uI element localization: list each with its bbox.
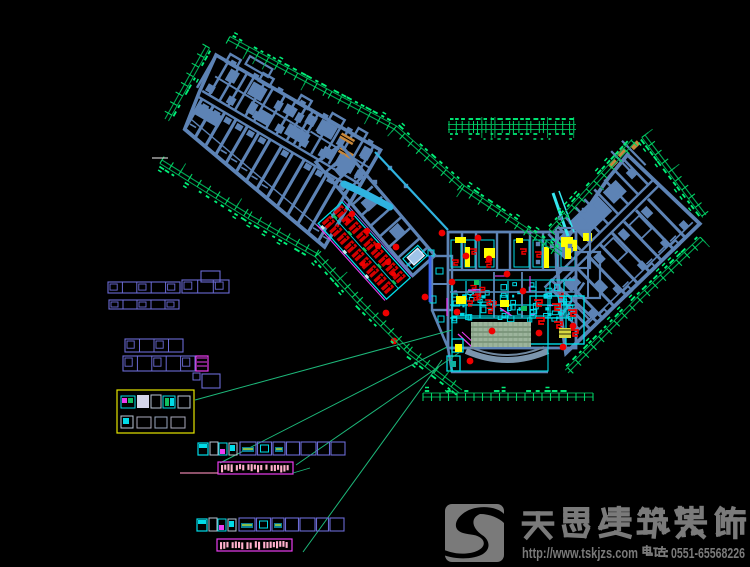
svg-text:http://www.tskjzs.com: http://www.tskjzs.com — [522, 545, 638, 562]
svg-text:0551-65568226: 0551-65568226 — [671, 545, 745, 562]
